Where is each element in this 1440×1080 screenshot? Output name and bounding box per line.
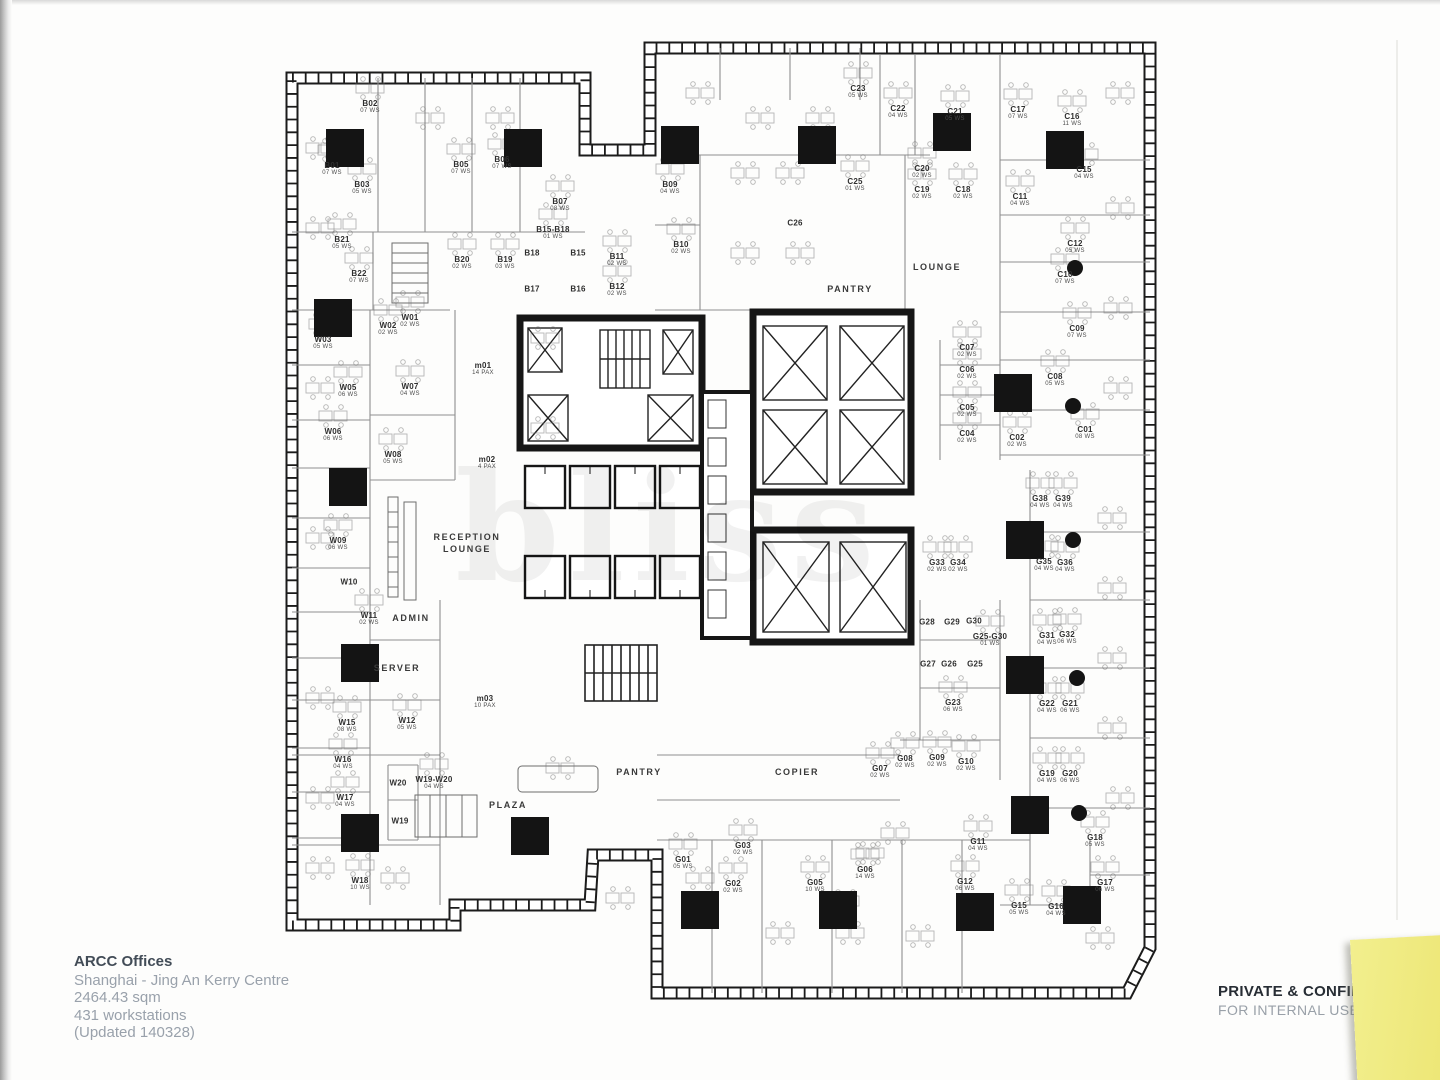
building-core <box>520 312 911 701</box>
structural-column <box>326 129 364 167</box>
desk-cluster <box>686 867 714 890</box>
plan-title: ARCC Offices <box>74 953 289 971</box>
desk-cluster <box>1033 609 1061 632</box>
structural-column <box>798 126 836 164</box>
plan-subtitle: Shanghai - Jing An Kerry Centre <box>74 972 289 990</box>
desk-cluster <box>393 694 421 717</box>
structural-column <box>341 814 379 852</box>
desk-cluster <box>923 536 951 559</box>
desk-cluster <box>1106 197 1134 220</box>
desk-cluster <box>953 381 981 404</box>
desk-cluster <box>951 855 979 878</box>
desk-cluster <box>606 887 634 910</box>
structural-column <box>661 126 699 164</box>
desk-cluster <box>447 138 475 161</box>
desk-cluster <box>1086 927 1114 950</box>
desk-cluster <box>1098 647 1126 670</box>
structural-column <box>956 893 994 931</box>
desk-cluster <box>923 731 951 754</box>
desk-cluster <box>546 757 574 780</box>
desk-cluster <box>306 857 334 880</box>
sticky-note <box>1350 935 1440 1080</box>
desk-cluster <box>491 233 519 256</box>
desk-cluster <box>941 85 969 108</box>
structural-column <box>1006 521 1044 559</box>
round-column <box>1065 398 1081 414</box>
desk-cluster <box>306 687 334 710</box>
desk-cluster <box>396 360 424 383</box>
desk-cluster <box>801 856 829 879</box>
desk-cluster <box>939 676 967 699</box>
desk-cluster <box>866 742 894 765</box>
desk-cluster <box>306 787 334 810</box>
toilet-stalls <box>702 392 752 638</box>
desk-cluster <box>1049 472 1077 495</box>
desk-cluster <box>1104 297 1132 320</box>
plan-area: 2464.43 sqm <box>74 989 289 1007</box>
desk-cluster <box>719 857 747 880</box>
structural-column <box>933 113 971 151</box>
desk-cluster <box>806 107 834 130</box>
structural-column <box>1006 656 1044 694</box>
floor-plan-drawing <box>0 0 1440 1080</box>
desk-cluster <box>964 815 992 838</box>
desk-cluster <box>881 822 909 845</box>
desk-cluster <box>355 589 383 612</box>
desk-cluster <box>884 82 912 105</box>
desk-cluster <box>953 343 981 366</box>
desk-cluster <box>731 242 759 265</box>
desk-cluster <box>1063 302 1091 325</box>
round-column <box>1071 805 1087 821</box>
desk-cluster <box>603 230 631 253</box>
desk-cluster <box>1061 217 1089 240</box>
column-dots-layer <box>1065 260 1087 821</box>
desk-cluster <box>420 753 448 776</box>
desk-cluster <box>546 175 574 198</box>
desk-cluster <box>416 107 444 130</box>
desk-cluster <box>1056 747 1084 770</box>
stamp-line-private: PRIVATE & CONFIDE <box>1218 982 1375 1001</box>
desk-cluster <box>319 405 347 428</box>
round-column <box>1065 532 1081 548</box>
desk-cluster <box>944 536 972 559</box>
desk-cluster <box>1033 747 1061 770</box>
structural-column <box>504 129 542 167</box>
stair <box>600 330 650 388</box>
desk-cluster <box>786 242 814 265</box>
structural-column <box>994 374 1032 412</box>
desk-cluster <box>331 771 359 794</box>
desk-cluster <box>952 735 980 758</box>
desk-cluster <box>766 922 794 945</box>
round-column <box>1069 670 1085 686</box>
desk-cluster <box>306 527 334 550</box>
desk-cluster <box>306 217 334 240</box>
desk-cluster <box>1098 717 1126 740</box>
footer-info: ARCC Offices Shanghai - Jing An Kerry Ce… <box>74 953 289 1042</box>
desk-cluster <box>1104 377 1132 400</box>
desk-cluster <box>379 428 407 451</box>
desk-cluster <box>746 107 774 130</box>
desk-cluster <box>448 233 476 256</box>
desk-cluster <box>844 62 872 85</box>
desk-cluster <box>333 696 361 719</box>
desk-cluster <box>1058 90 1086 113</box>
desk-cluster <box>539 203 567 226</box>
desk-cluster <box>953 407 981 430</box>
confidential-stamp: PRIVATE & CONFIDE FOR INTERNAL USE O <box>1218 982 1375 1020</box>
desk-cluster <box>381 867 409 890</box>
desk-cluster <box>1098 507 1126 530</box>
round-column <box>1067 260 1083 276</box>
desk-cluster <box>1098 577 1126 600</box>
desk-cluster <box>776 162 804 185</box>
structural-column <box>511 817 549 855</box>
desk-cluster <box>908 163 936 186</box>
structural-column <box>681 891 719 929</box>
desk-cluster <box>603 260 631 283</box>
structural-column <box>329 468 367 506</box>
desk-cluster <box>486 107 514 130</box>
desk-cluster <box>329 733 357 756</box>
scanned-floorplan-sheet: bliss B0207 WSB0107 WSB0305 WSB0507 WSB0… <box>0 0 1440 1080</box>
plan-updated: (Updated 140328) <box>74 1024 289 1042</box>
desk-cluster <box>949 163 977 186</box>
structural-column <box>1046 131 1084 169</box>
structural-column <box>1063 886 1101 924</box>
desk-cluster <box>1004 83 1032 106</box>
desk-cluster <box>841 155 869 178</box>
desk-cluster <box>686 82 714 105</box>
structural-column <box>819 891 857 929</box>
desk-cluster <box>908 142 936 165</box>
desk-cluster <box>906 925 934 948</box>
desk-cluster <box>1006 170 1034 193</box>
desk-cluster <box>334 361 362 384</box>
desk-cluster <box>1003 411 1031 434</box>
desk-cluster <box>731 162 759 185</box>
structural-column <box>1011 796 1049 834</box>
desk-cluster <box>729 819 757 842</box>
structural-column <box>314 299 352 337</box>
desk-cluster <box>1106 82 1134 105</box>
desk-cluster <box>306 377 334 400</box>
desk-cluster <box>1041 350 1069 373</box>
elevator-bank <box>525 466 700 598</box>
desk-cluster <box>669 833 697 856</box>
structural-column <box>341 644 379 682</box>
desk-cluster <box>667 218 695 241</box>
desk-cluster <box>345 247 373 270</box>
plan-workstations: 431 workstations <box>74 1007 289 1025</box>
stair-lower <box>585 645 657 701</box>
desk-cluster <box>1106 787 1134 810</box>
desk-cluster <box>953 321 981 344</box>
desk-cluster <box>1005 879 1033 902</box>
desk-cluster <box>891 732 919 755</box>
stamp-line-internal: FOR INTERNAL USE O <box>1218 1001 1375 1020</box>
